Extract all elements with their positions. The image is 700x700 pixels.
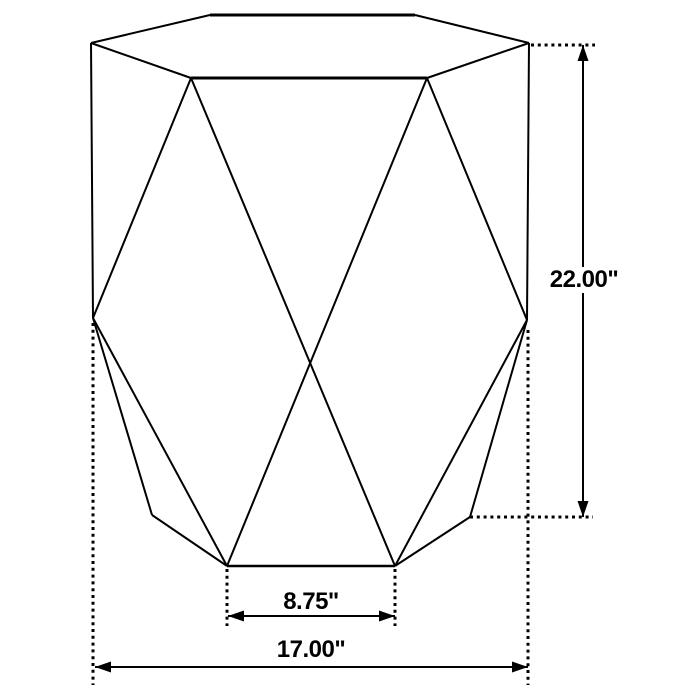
dimension-arrowhead xyxy=(578,501,589,517)
table-edge-line xyxy=(152,515,227,566)
table-line-drawing xyxy=(0,0,700,700)
table-edge-line xyxy=(191,78,395,566)
table-edge-line xyxy=(427,78,527,320)
dimension-arrowhead xyxy=(578,45,589,61)
dimension-arrowhead xyxy=(512,662,528,673)
table-edge-line xyxy=(91,43,191,78)
dimension-arrowhead xyxy=(95,662,111,673)
table-edge-line xyxy=(93,78,191,318)
dimension-label-overall-width: 17.00" xyxy=(273,637,349,663)
table-edge-line xyxy=(91,15,210,43)
table-edge-line xyxy=(395,517,470,566)
dimension-arrowhead xyxy=(379,611,395,622)
table-edge-line xyxy=(91,43,93,318)
table-edge-line xyxy=(470,320,527,517)
dimension-label-height: 22.00" xyxy=(546,267,622,293)
dimension-label-base-width: 8.75" xyxy=(279,589,343,615)
table-edge-line xyxy=(427,43,529,78)
table-edge-line xyxy=(93,318,152,515)
table-edge-line xyxy=(415,15,529,43)
table-edge-line xyxy=(93,318,227,566)
furniture-dimension-diagram: 22.00" 8.75" 17.00" xyxy=(0,0,700,700)
table-edge-line xyxy=(227,78,427,566)
dimension-arrowhead xyxy=(228,611,244,622)
table-edge-line xyxy=(527,43,529,320)
table-edge-line xyxy=(395,320,527,566)
